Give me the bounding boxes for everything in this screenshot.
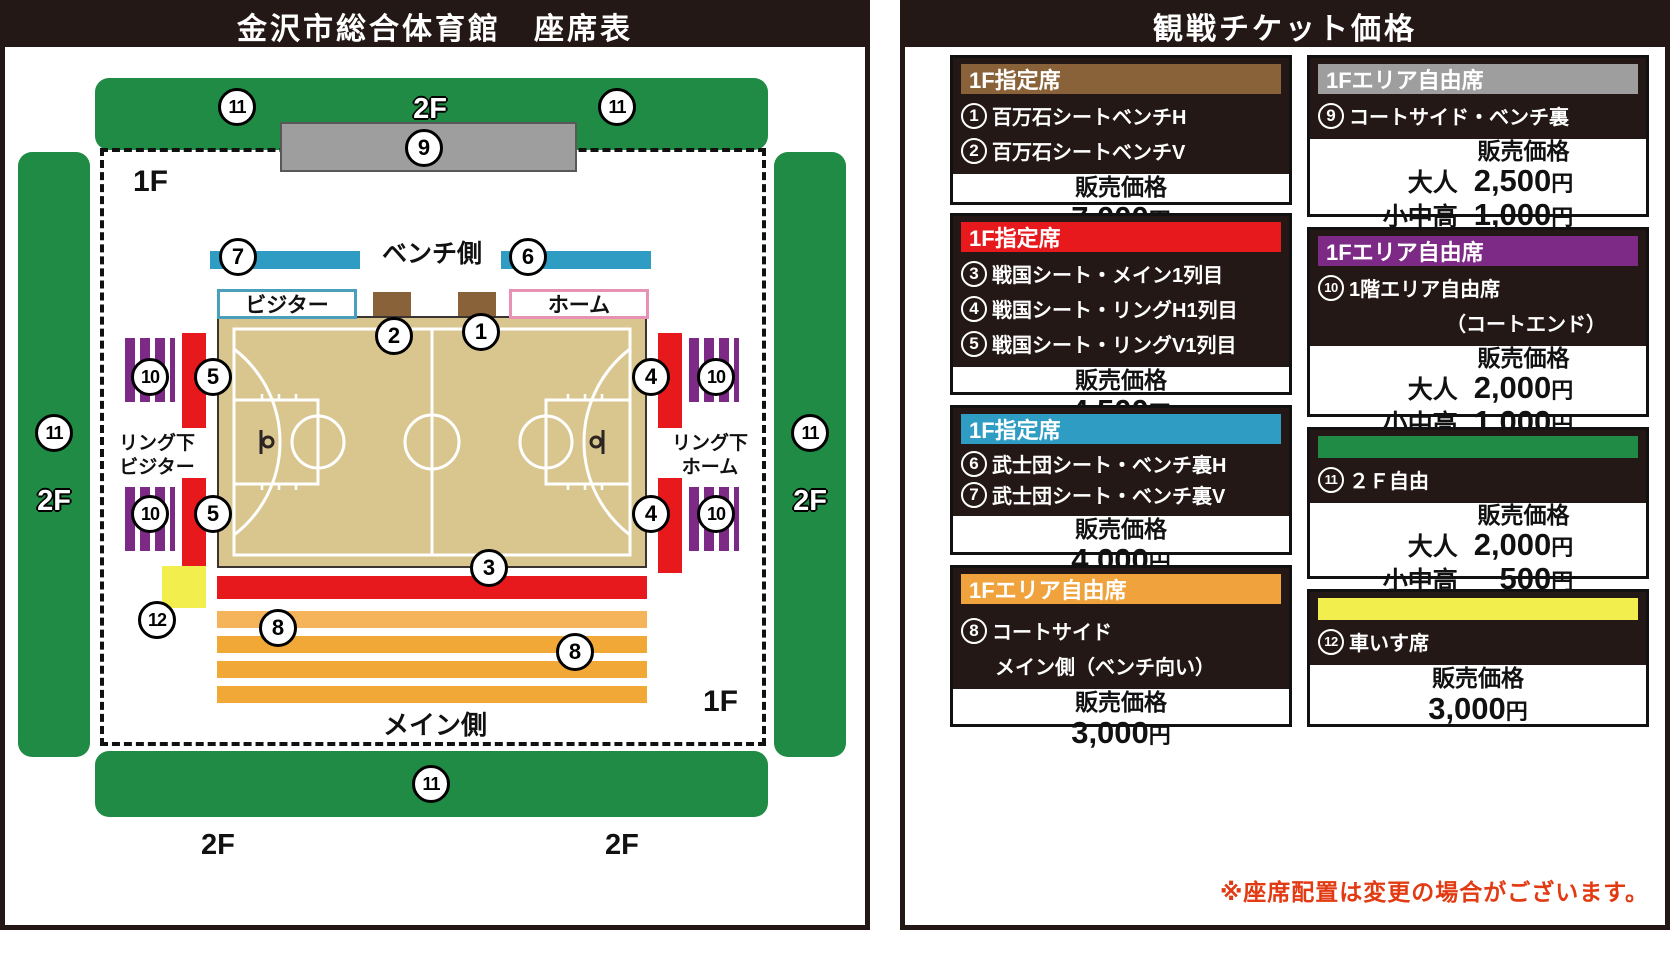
price-label: 販売価格 — [1474, 503, 1574, 528]
price-label: 販売価格 — [1071, 174, 1171, 200]
seat-badge-11: 11 — [218, 88, 256, 126]
ring-shita-home-label: リング下 ホーム — [650, 432, 770, 480]
price-value: 3,000円 — [1428, 691, 1528, 727]
basketball-court — [217, 316, 647, 568]
price-label: 販売価格 — [1071, 516, 1171, 542]
seat-badge-3: 3 — [470, 549, 508, 587]
price-box-header: 1Fエリア自由席 — [1318, 64, 1638, 94]
basketball-court-svg — [219, 318, 645, 566]
seat-row: 5戦国シート・リングV1列目 — [961, 326, 1281, 361]
section-2-block — [373, 292, 411, 317]
price-label: 販売価格 — [1474, 346, 1574, 371]
seat-badge-5: 5 — [194, 495, 232, 533]
price-box-1f-area-purple: 1Fエリア自由席 101階エリア自由席 （コートエンド） 販売価格 大人 2,0… — [1307, 227, 1649, 417]
price-box-wheelchair: 12車いす席 販売価格 3,000円 — [1307, 589, 1649, 727]
floor-1f-label: 1F — [133, 165, 168, 199]
price-audience: 大人 — [1383, 534, 1458, 562]
seat-badge-10: 10 — [697, 358, 735, 396]
bench-side-label: ベンチ側 — [362, 234, 502, 270]
floor-1f-label: 1F — [703, 685, 738, 719]
seat-badge-4: 4 — [632, 495, 670, 533]
section-3-block — [217, 576, 647, 599]
price-box-header: 1Fエリア自由席 — [1318, 236, 1638, 266]
price-audience: 大人 — [1383, 377, 1458, 405]
seat-badge-12: 12 — [138, 601, 176, 639]
seat-row: 7武士団シート・ベンチ裏V — [961, 479, 1281, 510]
stand-2f-right-label: 2F — [774, 485, 846, 518]
seat-badge-11: 11 — [598, 88, 636, 126]
seat-number-badge: 6 — [961, 451, 987, 477]
venue-title: 金沢市総合体育館 座席表 — [5, 5, 865, 47]
seat-row: 1百万石シートベンチH — [961, 98, 1281, 133]
price-label: 販売価格 — [1071, 367, 1171, 393]
home-label-box: ホーム — [509, 289, 649, 319]
seat-number-badge: 7 — [961, 482, 987, 508]
price-box-header: 1F指定席 — [961, 64, 1281, 94]
seat-row: 9コートサイド・ベンチ裏 — [1318, 98, 1638, 133]
stand-2f-left-label: 2F — [18, 485, 90, 518]
price-panel-body: 1F指定席 1百万石シートベンチH 2百万石シートベンチV 販売価格 7,000… — [905, 47, 1665, 925]
stand-2f-left — [18, 152, 90, 757]
seat-row: 2百万石シートベンチV — [961, 133, 1281, 168]
seat-number-badge: 3 — [961, 261, 987, 287]
seat-badge-11: 11 — [412, 765, 450, 803]
seat-row: 6武士団シート・ベンチ裏H — [961, 448, 1281, 479]
price-label: 販売価格 — [1428, 665, 1528, 691]
seat-number-badge: 12 — [1318, 629, 1344, 655]
section-8-block — [217, 686, 647, 703]
seat-row: 11２Ｆ自由 — [1318, 462, 1638, 497]
floor-2f-label: 2F — [605, 829, 639, 862]
price-box-header: 1F指定席 — [961, 222, 1281, 252]
price-box-1f-area-gray: 1Fエリア自由席 9コートサイド・ベンチ裏 販売価格 大人 2,500円 小中高… — [1307, 55, 1649, 217]
price-value: 3,000円 — [1071, 715, 1171, 751]
seat-row: 8コートサイド — [961, 608, 1281, 648]
seat-badge-7: 7 — [219, 238, 257, 276]
seat-row: 4戦国シート・リングH1列目 — [961, 291, 1281, 326]
seat-number-badge: 5 — [961, 331, 987, 357]
seat-badge-11: 11 — [791, 414, 829, 452]
ring-shita-visitor-label: リング下 ビジター — [97, 432, 217, 480]
price-box-color-bar — [1318, 436, 1638, 458]
section-12-block — [162, 566, 206, 608]
seat-number-badge: 4 — [961, 296, 987, 322]
basket-left-icon — [261, 430, 273, 454]
seating-chart-poster: 金沢市総合体育館 座席表 2F 11 11 11 2F 11 2F 11 2F … — [0, 0, 1675, 977]
price-label: 販売価格 — [1474, 139, 1574, 164]
seating-change-disclaimer: ※座席配置は変更の場合がございます。 — [1220, 873, 1649, 907]
price-box-1f-shitei-brown: 1F指定席 1百万石シートベンチH 2百万石シートベンチV 販売価格 7,000… — [950, 55, 1292, 205]
seat-number-badge: 11 — [1318, 467, 1344, 493]
seat-row: メイン側（ベンチ向い） — [961, 648, 1281, 683]
seat-badge-11: 11 — [35, 414, 73, 452]
price-box-header: 1Fエリア自由席 — [961, 574, 1281, 604]
basket-right-icon — [591, 430, 603, 454]
price-box-color-bar — [1318, 598, 1638, 620]
price-box-header: 1F指定席 — [961, 414, 1281, 444]
seat-number-badge: 8 — [961, 618, 987, 644]
price-box-1f-area-orange: 1Fエリア自由席 8コートサイド メイン側（ベンチ向い） 販売価格 3,000円 — [950, 565, 1292, 727]
seat-badge-1: 1 — [462, 313, 500, 351]
seat-number-badge: 2 — [961, 138, 987, 164]
price-label: 販売価格 — [1071, 689, 1171, 715]
seat-badge-10: 10 — [697, 495, 735, 533]
ticket-price-panel: 観戦チケット価格 1F指定席 1百万石シートベンチH 2百万石シートベンチV 販… — [900, 0, 1670, 930]
price-box-1f-shitei-blue: 1F指定席 6武士団シート・ベンチ裏H 7武士団シート・ベンチ裏V 販売価格 4… — [950, 405, 1292, 555]
price-box-1f-shitei-red: 1F指定席 3戦国シート・メイン1列目 4戦国シート・リングH1列目 5戦国シー… — [950, 213, 1292, 395]
price-value: 2,000円 — [1474, 528, 1574, 562]
seat-row: 3戦国シート・メイン1列目 — [961, 256, 1281, 291]
seat-badge-4: 4 — [632, 358, 670, 396]
seat-map-panel: 金沢市総合体育館 座席表 2F 11 11 11 2F 11 2F 11 2F … — [0, 0, 870, 930]
price-audience: 大人 — [1383, 170, 1458, 198]
seat-row: （コートエンド） — [1318, 305, 1638, 340]
seat-row: 101階エリア自由席 — [1318, 270, 1638, 305]
seat-badge-8: 8 — [259, 609, 297, 647]
floor-2f-label: 2F — [201, 829, 235, 862]
seat-badge-10: 10 — [131, 358, 169, 396]
seat-badge-10: 10 — [131, 495, 169, 533]
seat-badge-5: 5 — [194, 358, 232, 396]
seat-badge-2: 2 — [375, 317, 413, 355]
seat-badge-6: 6 — [509, 238, 547, 276]
seat-map: 2F 11 11 11 2F 11 2F 11 2F 2F 9 1F 1F ベン… — [5, 47, 865, 925]
price-value: 2,500円 — [1474, 164, 1574, 198]
seat-badge-8: 8 — [556, 633, 594, 671]
price-panel-title: 観戦チケット価格 — [905, 5, 1665, 47]
price-value: 2,000円 — [1474, 371, 1574, 405]
seat-badge-9: 9 — [405, 129, 443, 167]
seat-number-badge: 1 — [961, 103, 987, 129]
main-side-label: メイン側 — [335, 705, 535, 742]
seat-row: 12車いす席 — [1318, 624, 1638, 659]
seat-number-badge: 10 — [1318, 275, 1344, 301]
stand-2f-right — [774, 152, 846, 757]
seat-number-badge: 9 — [1318, 103, 1344, 129]
price-box-2f-free: 11２Ｆ自由 販売価格 大人 2,000円 小中高 500円 — [1307, 427, 1649, 579]
visitor-label-box: ビジター — [217, 289, 357, 319]
